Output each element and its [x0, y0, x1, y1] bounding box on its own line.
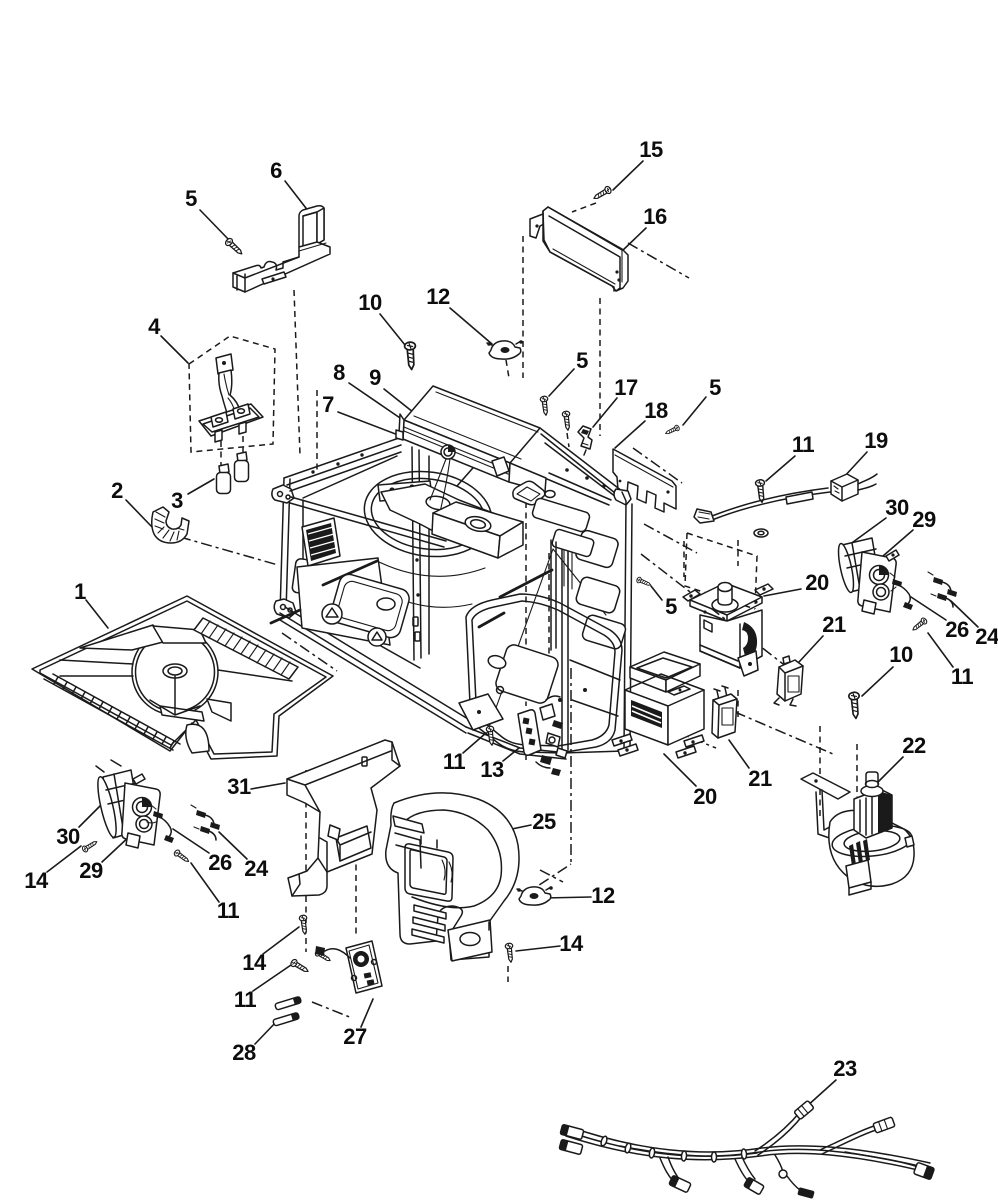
svg-text:21: 21: [822, 612, 846, 637]
svg-text:16: 16: [643, 204, 667, 229]
svg-text:29: 29: [79, 858, 103, 883]
svg-text:5: 5: [709, 375, 721, 400]
svg-text:11: 11: [951, 664, 974, 689]
svg-text:19: 19: [864, 428, 888, 453]
svg-text:14: 14: [24, 868, 49, 893]
svg-text:5: 5: [665, 594, 677, 619]
svg-text:4: 4: [148, 314, 161, 339]
svg-text:14: 14: [559, 931, 584, 956]
svg-text:26: 26: [208, 850, 232, 875]
svg-text:30: 30: [885, 495, 909, 520]
svg-text:26: 26: [945, 617, 969, 642]
svg-text:12: 12: [591, 883, 615, 908]
svg-text:5: 5: [185, 186, 197, 211]
svg-text:24: 24: [244, 856, 269, 881]
svg-text:3: 3: [171, 488, 183, 513]
svg-text:28: 28: [232, 1040, 256, 1065]
svg-text:15: 15: [639, 137, 663, 162]
svg-text:2: 2: [111, 478, 123, 503]
svg-text:27: 27: [343, 1024, 367, 1049]
svg-text:25: 25: [532, 809, 556, 834]
svg-text:23: 23: [833, 1056, 857, 1081]
svg-text:11: 11: [217, 898, 240, 923]
svg-text:31: 31: [227, 774, 251, 799]
svg-text:21: 21: [748, 766, 772, 791]
svg-text:17: 17: [614, 375, 638, 400]
svg-text:29: 29: [912, 507, 936, 532]
svg-text:20: 20: [805, 570, 829, 595]
svg-text:7: 7: [322, 392, 334, 417]
svg-text:24: 24: [975, 624, 998, 649]
svg-text:10: 10: [358, 290, 382, 315]
svg-text:8: 8: [333, 360, 345, 385]
svg-text:18: 18: [644, 398, 668, 423]
svg-text:20: 20: [693, 784, 717, 809]
svg-text:11: 11: [443, 749, 466, 774]
svg-text:13: 13: [480, 757, 504, 782]
svg-text:1: 1: [74, 579, 86, 604]
svg-text:6: 6: [270, 158, 282, 183]
svg-text:30: 30: [56, 824, 80, 849]
svg-text:11: 11: [792, 432, 815, 457]
svg-text:9: 9: [369, 365, 381, 390]
svg-text:12: 12: [426, 284, 450, 309]
svg-text:10: 10: [889, 642, 913, 667]
svg-text:22: 22: [902, 733, 926, 758]
svg-text:5: 5: [576, 348, 588, 373]
